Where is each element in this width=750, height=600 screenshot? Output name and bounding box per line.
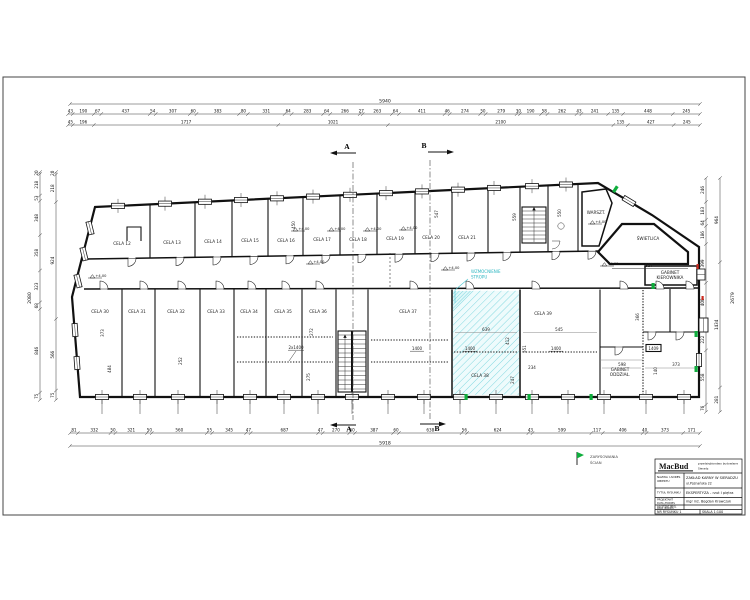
svg-text:B: B: [434, 424, 439, 433]
svg-text:A: A: [344, 142, 350, 151]
door-swing-icon: [316, 281, 324, 289]
svg-text:550: 550: [557, 209, 562, 217]
dim-value: 20: [50, 170, 55, 176]
sheet-frame: [3, 77, 745, 515]
door-swing-icon: [532, 281, 540, 289]
door-swing-icon: [128, 258, 136, 266]
dim-value: 186: [700, 231, 705, 239]
dim-value: 348: [34, 214, 39, 222]
door-swing-icon: [140, 281, 148, 289]
dim-value: 1434: [714, 319, 719, 330]
dim-value: 624: [494, 428, 502, 433]
svg-text:+4.00: +4.00: [95, 274, 107, 278]
dim-value: 135: [617, 120, 625, 125]
door-swing-icon: [552, 252, 560, 260]
dim-value: 411: [418, 109, 426, 114]
svg-text:+4.00: +4.00: [334, 227, 346, 231]
object-name: ZAKŁAD KARNY W SIERADZU: [686, 476, 738, 480]
svg-text:CELA 16: CELA 16: [277, 238, 295, 243]
dim-value: 5940: [379, 99, 391, 105]
field-designer-label-2: DATA /PODPIS: [657, 501, 675, 505]
staircase-bottom: [338, 331, 366, 392]
dim-value: 358: [34, 248, 39, 256]
dim-value: 218: [34, 180, 39, 188]
dim-value: 46: [445, 109, 451, 114]
dim-value: 30: [516, 109, 522, 114]
dim-value: 64: [286, 109, 292, 114]
dim-value: 64: [324, 109, 330, 114]
svg-text:366: 366: [635, 313, 640, 321]
svg-text:484: 484: [107, 365, 112, 373]
dim-value: 196: [79, 120, 87, 125]
dim-value: 383: [214, 109, 222, 114]
door-swing-icon: [588, 251, 596, 259]
dim-value: 5918: [379, 441, 391, 447]
dim-value: 55: [207, 428, 213, 433]
dim-value: 331: [262, 109, 270, 114]
dim-value: 332: [90, 428, 98, 433]
dim-value: 924: [50, 256, 55, 264]
dim-value: 427: [647, 120, 655, 125]
dim-chain-top-1: 4319067437543076038380331642836426627263…: [66, 109, 701, 116]
svg-text:ODDZIAŁ.: ODDZIAŁ.: [610, 372, 630, 377]
drawing-sheet: 5940 43190674375430760383803316428364266…: [0, 0, 750, 600]
dim-value: 47: [246, 428, 252, 433]
svg-text:1409: 1409: [648, 346, 659, 351]
dim-value: 171: [688, 428, 696, 433]
dim-value: 20: [34, 170, 39, 176]
dim-value: 283: [304, 109, 312, 114]
svg-text:827: 827: [645, 263, 653, 268]
svg-text:373: 373: [672, 362, 680, 367]
door-swing-icon: [358, 255, 366, 263]
svg-text:CELA 19: CELA 19: [386, 236, 404, 241]
dim-value: 387: [370, 428, 378, 433]
svg-text:559: 559: [512, 213, 517, 221]
dim-value: 53: [34, 195, 39, 201]
dim-left-total: 2080: [27, 292, 33, 304]
svg-text:1400: 1400: [551, 346, 562, 351]
logo-subtitle-2: Sieradz: [698, 467, 709, 471]
svg-text:598: 598: [618, 362, 626, 367]
svg-text:CELA 21: CELA 21: [458, 235, 476, 240]
svg-text:+4.00: +4.00: [406, 226, 418, 230]
door-swing-icon: [286, 256, 294, 264]
svg-text:CELA 33: CELA 33: [207, 309, 225, 314]
logo-subtitle-1: przedsiębiorstwo budowlane: [698, 462, 738, 466]
svg-text:ŚWIETLICA: ŚWIETLICA: [637, 236, 660, 241]
svg-text:CELA 20: CELA 20: [422, 235, 440, 240]
dim-value: 558: [700, 373, 705, 381]
dim-value: 43: [528, 428, 534, 433]
svg-text:CELA 31: CELA 31: [128, 309, 146, 314]
svg-text:373: 373: [100, 329, 105, 337]
svg-text:CELA 37: CELA 37: [399, 309, 417, 314]
dim-value: 373: [661, 428, 669, 433]
legend-line-1: ZARYSOWANIA: [590, 454, 618, 459]
svg-text:WARSZT.: WARSZT.: [587, 210, 606, 215]
dim-value: 64: [393, 109, 399, 114]
svg-text:272: 272: [309, 328, 314, 336]
dim-value: 40: [642, 428, 648, 433]
svg-text:275: 275: [306, 373, 311, 381]
svg-text:CELA 13: CELA 13: [163, 240, 181, 245]
door-swing-icon: [250, 256, 258, 264]
door-swing-icon: [615, 347, 623, 355]
svg-text:CELA 17: CELA 17: [313, 237, 331, 242]
door-swing-icon: [213, 257, 221, 265]
dim-value: 56: [462, 428, 468, 433]
svg-text:+4.00: +4.00: [313, 260, 325, 264]
svg-text:CELA 14: CELA 14: [204, 239, 222, 244]
svg-text:639: 639: [482, 327, 490, 332]
door-swing-icon: [656, 281, 664, 289]
dim-value: 50: [480, 109, 486, 114]
door-swing-icon: [216, 281, 224, 289]
dim-value: 2100: [495, 120, 506, 125]
svg-text:140: 140: [653, 367, 658, 375]
dim-value: 448: [644, 109, 652, 114]
legend-line-2: ŚCIAN: [590, 460, 602, 465]
door-swing-icon: [686, 281, 694, 289]
svg-text:CELA 34: CELA 34: [240, 309, 258, 314]
company-logo: MacBud: [659, 462, 689, 471]
svg-text:551: 551: [522, 345, 527, 353]
svg-text:1400: 1400: [412, 346, 423, 351]
dim-chain-right-1: 246183641863994007222255876: [700, 176, 708, 413]
svg-text:CELA 35: CELA 35: [274, 309, 292, 314]
dim-value: 399: [700, 259, 705, 267]
dim-value: 68: [34, 303, 39, 309]
door-swing-icon: [466, 281, 474, 289]
building-outline: [72, 183, 708, 397]
designer-name: mgr inż. Bogdan Krawczyk: [686, 500, 731, 504]
door-swing-icon: [100, 281, 108, 289]
dim-value: 687: [280, 428, 288, 433]
dim-value: 262: [558, 109, 566, 114]
dim-value: 117: [593, 428, 601, 433]
svg-text:1400: 1400: [465, 346, 476, 351]
dim-value: 81: [71, 428, 77, 433]
svg-text:CELA 12: CELA 12: [113, 241, 131, 246]
dim-chain-left-2: 2021892456675: [50, 170, 58, 401]
dim-right-total: 2679: [730, 292, 736, 304]
dim-value: 190: [79, 109, 87, 114]
dim-chain-bottom-total: 5918: [68, 441, 701, 448]
dim-value: 218: [50, 184, 55, 192]
svg-text:+4.00: +4.00: [595, 220, 607, 224]
svg-text:412: 412: [505, 337, 510, 345]
dim-chain-bottom-1: 8133250321505605534547687472706038760638…: [68, 428, 701, 435]
door-swing-icon: [176, 258, 184, 266]
dim-value: 638: [426, 428, 434, 433]
dim-value: 50: [110, 428, 116, 433]
dim-value: 321: [127, 428, 135, 433]
doors-right-block-2: [615, 346, 623, 355]
door-swing-icon: [648, 332, 656, 340]
field-object-label-2: OBIEKTU: [657, 479, 670, 483]
svg-text:CELA 38: CELA 38: [471, 373, 489, 378]
svg-text:WZMOCNIENIE: WZMOCNIENIE: [471, 269, 501, 274]
dim-value: 560: [175, 428, 183, 433]
dim-value: 245: [683, 120, 691, 125]
svg-text:252: 252: [178, 357, 183, 365]
dim-chain-top-total: 5940: [68, 99, 701, 106]
door-swing-icon: [282, 281, 290, 289]
dim-value: 406: [619, 428, 627, 433]
svg-text:+4.00: +4.00: [607, 262, 619, 266]
svg-text:B: B: [421, 141, 426, 150]
level-flags: +4.00 +4.00 +4.00 +4.00 +4.00 +4.00 +4.0…: [88, 220, 619, 278]
dim-value: 281: [714, 395, 719, 403]
dim-value: 241: [591, 109, 599, 114]
dim-value: 54: [150, 109, 156, 114]
dim-value: 183: [700, 207, 705, 215]
dim-value: 58: [542, 109, 548, 114]
dim-chain-top-2: 45196171710212100135427245: [66, 120, 701, 127]
title-block: MacBud przedsiębiorstwo budowlane Sierad…: [655, 459, 742, 514]
door-swing-icon: [620, 281, 628, 289]
svg-text:CELA 30: CELA 30: [91, 309, 109, 314]
door-swing-icon: [503, 253, 511, 261]
door-swing-icon: [431, 254, 439, 262]
legend: ZARYSOWANIA ŚCIAN: [577, 452, 618, 465]
svg-text:CELA 39: CELA 39: [534, 311, 552, 316]
object-address: ul.Poznańska 22: [686, 482, 712, 486]
svg-text:CELA 15: CELA 15: [241, 238, 259, 243]
dim-value: 75: [34, 393, 39, 399]
door-swing-icon: [395, 254, 403, 262]
dim-value: 222: [700, 335, 705, 343]
drawing-scale: SKALA 1:100: [702, 510, 723, 514]
dim-value: 43: [68, 109, 74, 114]
dim-value: 279: [497, 109, 505, 114]
svg-text:+4.00: +4.00: [370, 227, 382, 231]
dim-value: 45: [68, 120, 74, 125]
drawing-title: EKSPERTYZA - rzut I piętra: [686, 491, 733, 495]
dim-value: 345: [225, 428, 233, 433]
dim-value: 75: [50, 392, 55, 398]
dim-value: 599: [558, 428, 566, 433]
dim-chain-right-2: 9641434281: [714, 176, 722, 413]
svg-text:247: 247: [510, 376, 515, 384]
dim-value: 1717: [181, 120, 192, 125]
svg-text:KIEROWNIKA: KIEROWNIKA: [657, 275, 684, 280]
svg-text:CELA 36: CELA 36: [309, 309, 327, 314]
dim-value: 64: [700, 220, 705, 226]
legend-crack-flag-icon: [577, 452, 584, 459]
dim-value: 1021: [328, 120, 339, 125]
floor-plan-canvas: 5940 43190674375430760383803316428364266…: [0, 0, 750, 600]
svg-text:CELA 18: CELA 18: [349, 237, 367, 242]
dim-value: 307: [169, 109, 177, 114]
svg-text:A: A: [346, 425, 352, 434]
dim-value: 270: [332, 428, 340, 433]
dim-value: 135: [612, 109, 620, 114]
dim-value: 67: [95, 109, 101, 114]
field-title-label: TYTUŁ RYSUNKU: [656, 491, 681, 495]
dim-value: 274: [461, 109, 469, 114]
dim-value: 190: [527, 109, 535, 114]
door-swing-icon: [248, 281, 256, 289]
door-swing-icon: [178, 281, 186, 289]
dim-value: 76: [700, 405, 705, 411]
dim-value: 27: [359, 109, 365, 114]
dim-value: 60: [191, 109, 197, 114]
svg-text:+4.00: +4.00: [448, 266, 460, 270]
dim-value: 43: [576, 109, 582, 114]
svg-text:234: 234: [528, 365, 536, 370]
svg-text:2x1400: 2x1400: [288, 345, 304, 350]
staircase-top: [522, 207, 546, 243]
dim-value: 245: [682, 109, 690, 114]
door-swing-icon: [467, 253, 475, 261]
dim-value: 964: [714, 216, 719, 224]
door-swing-icon: [410, 281, 418, 289]
dim-value: 80: [241, 109, 247, 114]
dim-value: 566: [50, 350, 55, 358]
door-swing-icon: [676, 332, 684, 340]
windows-bottom: [96, 390, 691, 414]
svg-text:CELA 32: CELA 32: [167, 309, 185, 314]
dim-value: 846: [34, 347, 39, 355]
svg-text:545: 545: [555, 327, 563, 332]
dim-value: 246: [700, 186, 705, 194]
dim-value: 266: [341, 109, 349, 114]
section-b: B B: [420, 141, 454, 433]
svg-text:547: 547: [434, 210, 439, 218]
dim-value: 47: [318, 428, 324, 433]
dim-value: 323: [34, 282, 39, 290]
dim-chain-left-1: 20218533483583236884675: [34, 170, 42, 402]
dim-value: 437: [122, 109, 130, 114]
room-labels: CELA 12 CELA 13 CELA 14 CELA 15 CELA 16 …: [91, 210, 683, 378]
dim-value: 60: [393, 428, 399, 433]
dim-value: 263: [373, 109, 381, 114]
svg-text:+4.00: +4.00: [298, 227, 310, 231]
drawing-number: NR RYSUNKU 1: [657, 510, 682, 514]
svg-text:STROPU: STROPU: [471, 275, 487, 280]
dim-value: 50: [147, 428, 153, 433]
